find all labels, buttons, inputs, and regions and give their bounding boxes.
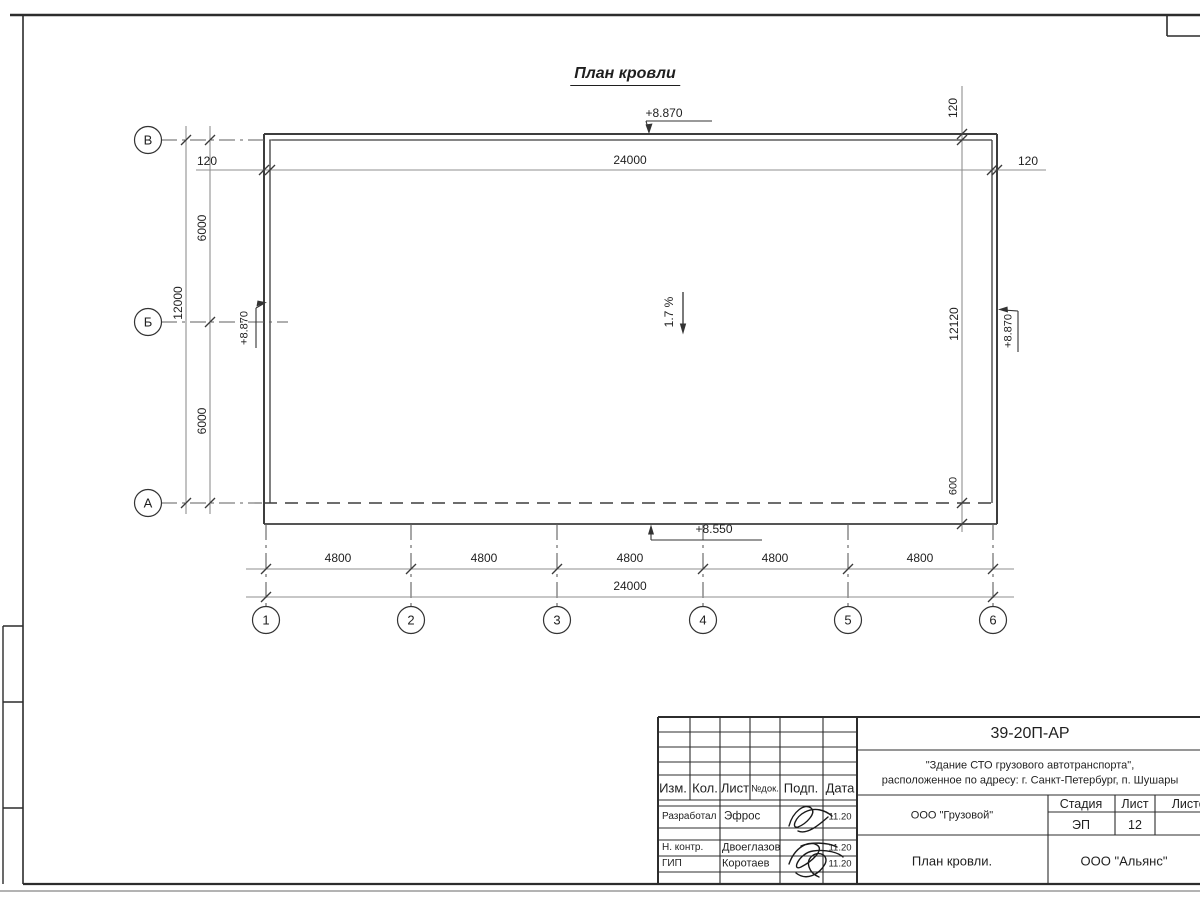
tb-date-ncontr: 11.20 — [828, 843, 851, 853]
dim-overhang: 600 — [949, 477, 960, 495]
tb-name-gip: Коротаев — [722, 859, 770, 870]
tb-header-podp: Подп. — [784, 782, 819, 795]
roof-outline — [264, 134, 997, 524]
dim-bottom-span-5: 4800 — [907, 552, 934, 564]
elevation-mark-left: +8.870 — [240, 311, 251, 345]
dim-span-upper: 6000 — [196, 215, 208, 242]
tb-doc-code: 39-20П-АР — [990, 726, 1069, 742]
tb-client: ООО "Грузовой" — [911, 811, 993, 822]
tb-stage-value: ЭП — [1072, 819, 1090, 832]
axis-col-label-1: 1 — [262, 614, 269, 627]
tb-date-gip: 11.20 — [828, 859, 851, 869]
dim-parapet-top: 120 — [947, 98, 959, 118]
axis-col-label-3: 3 — [553, 614, 560, 627]
tb-role-gip: ГИП — [662, 859, 682, 869]
dim-total-bottom: 24000 — [613, 580, 646, 592]
dim-total-left: 12000 — [172, 286, 184, 319]
tb-header-list: Лист — [721, 782, 749, 795]
elevation-mark-top: +8.870 — [645, 107, 682, 119]
dimension-ticks — [181, 129, 1002, 602]
slope-label: 1.7 % — [663, 297, 675, 328]
axis-col-label-5: 5 — [844, 614, 851, 627]
tb-date-developer: 11.20 — [828, 812, 851, 822]
tb-role-developer: Разработал — [662, 812, 716, 822]
tb-project-line1: "Здание СТО грузового автотранспорта", — [926, 761, 1135, 772]
axis-row-label-v: В — [144, 134, 153, 147]
tb-company: ООО "Альянс" — [1081, 855, 1168, 868]
drawing-sheet: План кровли +8.870 24000 120 120 120 600… — [0, 0, 1200, 900]
tb-stage-label: Стадия — [1060, 798, 1103, 811]
leaders — [256, 121, 1018, 540]
tb-header-izm: Изм. — [659, 782, 687, 795]
tb-sheet-label: Лист — [1121, 798, 1148, 811]
dim-parapet-left: 120 — [197, 155, 217, 167]
tb-name-developer: Эфрос — [724, 811, 760, 823]
axis-row-label-b: Б — [144, 316, 153, 329]
drawing-title: План кровли — [570, 66, 680, 86]
dim-total-top: 24000 — [613, 154, 646, 166]
dim-right-height: 12120 — [948, 307, 960, 340]
tb-project-line2: расположенное по адресу: г. Санкт-Петерб… — [882, 776, 1178, 787]
tb-role-ncontr: Н. контр. — [662, 843, 703, 853]
dim-parapet-right: 120 — [1018, 155, 1038, 167]
axis-row-label-a: А — [144, 497, 153, 510]
axis-col-label-4: 4 — [699, 614, 706, 627]
axis-col-label-2: 2 — [407, 614, 414, 627]
dim-bottom-span-2: 4800 — [471, 552, 498, 564]
axis-bubbles — [135, 127, 1007, 634]
tb-name-ncontr: Двоеглазов — [722, 843, 780, 854]
tb-header-ndok: №док. — [751, 784, 779, 794]
tb-header-kol: Кол. — [692, 782, 718, 795]
dim-bottom-span-4: 4800 — [762, 552, 789, 564]
axis-lines — [161, 140, 993, 606]
axis-col-label-6: 6 — [989, 614, 996, 627]
tb-sheet-value: 12 — [1128, 819, 1142, 832]
elevation-mark-right: +8.870 — [1004, 314, 1015, 348]
tb-header-data: Дата — [826, 782, 855, 795]
dim-bottom-span-3: 4800 — [617, 552, 644, 564]
tb-sheets-label: Листов — [1172, 798, 1200, 811]
dim-bottom-span-1: 4800 — [325, 552, 352, 564]
tb-sheet-name: План кровли. — [912, 855, 992, 868]
elevation-mark-eave: +8.550 — [695, 523, 732, 535]
dim-span-lower: 6000 — [196, 408, 208, 435]
